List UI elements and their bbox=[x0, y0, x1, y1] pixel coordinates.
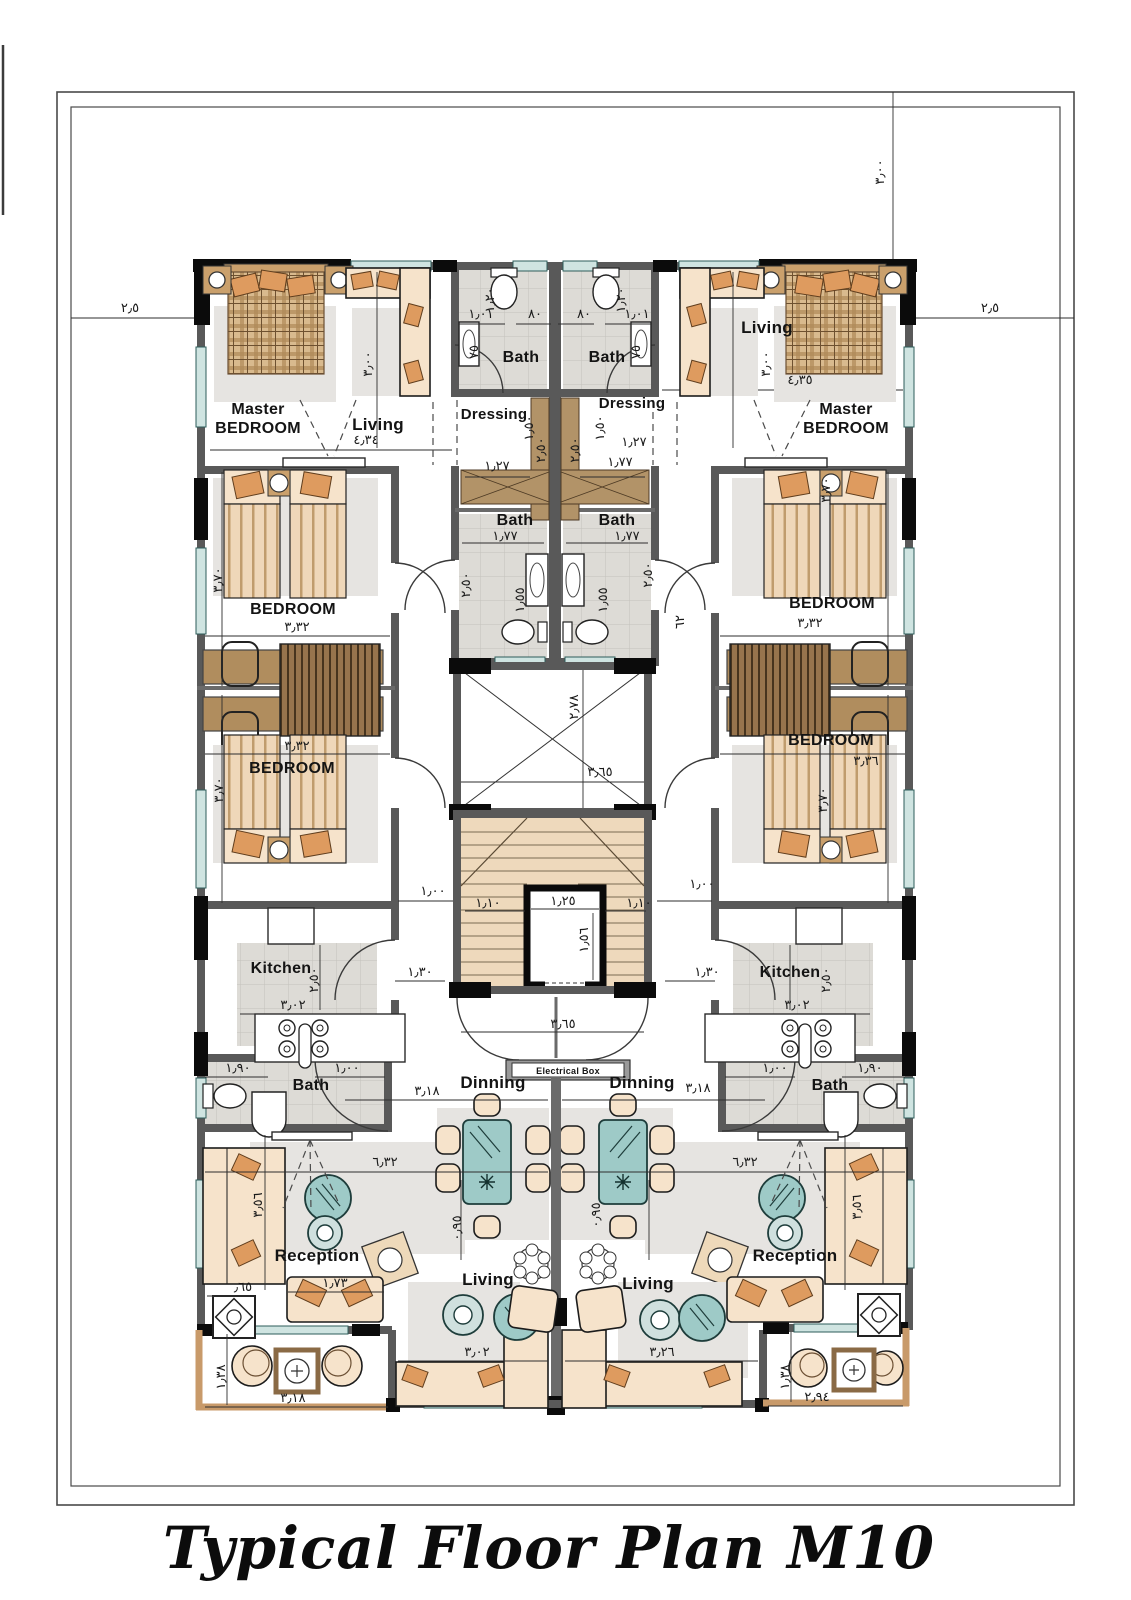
party-wall bbox=[551, 1077, 561, 1415]
dim-label: ٣٫٠٢ bbox=[464, 1345, 489, 1360]
dim-label: ٣٫٢٦ bbox=[649, 1345, 674, 1360]
dim-label: ٧٥ bbox=[467, 345, 482, 359]
dim-label: ١٫٢٠ bbox=[614, 287, 629, 312]
room-label-master-left-line2: BEDROOM bbox=[215, 420, 301, 437]
dim-label: ٣٫٥٦ bbox=[251, 1192, 266, 1217]
dim-label: ٣٫٧٠ bbox=[819, 477, 834, 502]
room-label-bedroom-right-1: BEDROOM bbox=[789, 595, 875, 612]
dim-label: ١٫٧٧ bbox=[492, 529, 517, 544]
room-label-master-left-line1: Master bbox=[231, 401, 284, 418]
dim-label: ١٫٩٠ bbox=[225, 1061, 250, 1076]
dim-label: ١٫٧٣ bbox=[322, 1276, 347, 1291]
dim-label: ٨٠ bbox=[577, 307, 591, 322]
dim-label: ٢٫٥٠ bbox=[307, 967, 322, 992]
room-label-bath-top-left: Bath bbox=[503, 349, 540, 366]
dim-label: ٢٫٥٠ bbox=[534, 437, 549, 462]
room-label-bath-mid-right: Bath bbox=[599, 512, 636, 529]
room-label-living-top-right: Living bbox=[741, 318, 793, 337]
dim-label: ٣٫٧٠ bbox=[816, 787, 831, 812]
room-label-master-right-line1: Master bbox=[819, 401, 872, 418]
dim-label: ٣٫٣٢ bbox=[284, 620, 309, 635]
room-label-dressing-right: Dressing bbox=[599, 395, 666, 412]
dim-label: ٢٫٥٠ bbox=[819, 967, 834, 992]
room-label-living-bottom-right: Living bbox=[622, 1274, 674, 1293]
plant-right bbox=[580, 1244, 616, 1284]
dim-label: ١٫٥٥ bbox=[513, 587, 528, 612]
floor-plan-page: MasterBEDROOMLivingBathBathDressingDress… bbox=[0, 0, 1131, 1600]
bedroom1-furniture bbox=[213, 470, 378, 598]
room-label-dinning-right: Dinning bbox=[609, 1073, 674, 1092]
dim-label: ٣٫٥٦ bbox=[850, 1194, 865, 1219]
dim-label: ٫٦٥ bbox=[234, 1280, 252, 1295]
room-label-kitchen-right: Kitchen bbox=[760, 964, 821, 981]
dim-label: ١٫٩٠ bbox=[857, 1061, 882, 1076]
dim-label: ١٫٣٨ bbox=[778, 1364, 793, 1389]
dim-label: ٠٫٩٥ bbox=[589, 1202, 604, 1227]
dim-label: ١٫٢٠ bbox=[483, 287, 498, 312]
dim-label: ١٫٠٠ bbox=[420, 884, 445, 899]
room-label-bath-bottom-left: Bath bbox=[293, 1077, 330, 1094]
dim-label: ١٫٢٥ bbox=[550, 894, 575, 909]
dim-label: ٣٫٠٠ bbox=[873, 159, 888, 184]
dim-label: ٠٫٩٥ bbox=[450, 1215, 465, 1240]
room-label-dinning-left: Dinning bbox=[460, 1073, 525, 1092]
dim-label: ١٫٧٧ bbox=[607, 455, 632, 470]
dim-label: ٣٫٠٢ bbox=[280, 998, 305, 1013]
room-label-bedroom-left-1: BEDROOM bbox=[250, 601, 336, 618]
dim-label: ٢٫٩٤ bbox=[804, 1390, 829, 1405]
corner-tile-right bbox=[858, 1294, 900, 1336]
room-label-electrical-box: Electrical Box bbox=[536, 1066, 600, 1076]
room-label-kitchen-left: Kitchen bbox=[251, 960, 312, 977]
dim-label: ١٫٣٨ bbox=[214, 1364, 229, 1389]
dim-label: ٣٫٧٠ bbox=[212, 777, 227, 802]
plant-left bbox=[514, 1244, 550, 1284]
dim-label: ٢٫٥ bbox=[981, 301, 999, 316]
plan-title: Typical Floor Plan M10 bbox=[163, 1514, 935, 1582]
dim-label: ٢٫٥٠ bbox=[459, 572, 474, 597]
dim-label: ١٫٠٠ bbox=[762, 1061, 787, 1076]
dim-label: ٣٫٣٦ bbox=[853, 754, 878, 769]
dim-label: ٣٫٦٥ bbox=[587, 765, 612, 780]
dim-label: ١٫٧٧ bbox=[614, 529, 639, 544]
dim-label: ١٫٣٠ bbox=[407, 965, 432, 980]
room-label-bedroom-left-2: BEDROOM bbox=[249, 760, 335, 777]
room-label-reception-right: Reception bbox=[753, 1246, 838, 1265]
dim-label: ٣٫٠٢ bbox=[784, 998, 809, 1013]
dim-label: ١٫٠٠ bbox=[689, 877, 714, 892]
dim-label: ٢٫٥٠ bbox=[568, 437, 583, 462]
dim-label: ٣٫١٨ bbox=[414, 1084, 439, 1099]
room-label-master-right-line2: BEDROOM bbox=[803, 420, 889, 437]
dim-label: ١٫٢٧ bbox=[621, 435, 646, 450]
dim-label: ٣٫٣٢ bbox=[284, 739, 309, 754]
dim-label: ١٫١٠ bbox=[626, 896, 651, 911]
dim-label: ٤٫٣٤ bbox=[353, 433, 378, 448]
room-label-reception-left: Reception bbox=[275, 1246, 360, 1265]
dim-label: ٣٫١٨ bbox=[280, 1391, 305, 1406]
dim-label: ٣٫٠٠ bbox=[361, 351, 376, 376]
dim-label: ٣٫٧٠ bbox=[211, 567, 226, 592]
dim-label: ٤٫٣٥ bbox=[787, 373, 812, 388]
dim-label: ٣٫٣٢ bbox=[797, 616, 822, 631]
dim-label: ٣٫٦٥ bbox=[550, 1017, 575, 1032]
room-label-bath-mid-left: Bath bbox=[497, 512, 534, 529]
dim-label: ٨٠ bbox=[528, 307, 542, 322]
dim-label: ٧٥ bbox=[629, 345, 644, 359]
dim-label: ١٫٣٠ bbox=[694, 965, 719, 980]
dim-label: ٣٫٠٠ bbox=[759, 351, 774, 376]
dim-label: ١٫١٠ bbox=[475, 896, 500, 911]
dim-label: ١٫٥٠ bbox=[522, 415, 537, 440]
dim-label: ٣٫١٨ bbox=[685, 1081, 710, 1096]
dim-label: ٢٫٧٨ bbox=[567, 694, 582, 719]
dim-label: ١٫٥٦ bbox=[577, 927, 592, 952]
dim-label: ٢٫٥٠ bbox=[641, 562, 656, 587]
dim-label: ٦٢ bbox=[673, 615, 688, 629]
room-label-bath-top-right: Bath bbox=[589, 349, 626, 366]
dim-label: ٢٫٥ bbox=[121, 301, 139, 316]
room-label-bath-bottom-right: Bath bbox=[812, 1077, 849, 1094]
room-label-living-bottom-left: Living bbox=[462, 1270, 514, 1289]
dim-label: ١٫٥٥ bbox=[596, 587, 611, 612]
room-label-bedroom-right-2: BEDROOM bbox=[788, 732, 874, 749]
dim-label: ١٫٠٠ bbox=[334, 1061, 359, 1076]
dim-label: ١٫٥٠ bbox=[593, 415, 608, 440]
corner-tile-left bbox=[213, 1296, 255, 1338]
dim-label: ١٫٢٧ bbox=[484, 459, 509, 474]
room-label-dressing-left: Dressing bbox=[461, 406, 528, 423]
room-label-living-top-left: Living bbox=[352, 415, 404, 434]
dim-label: ٦٫٣٢ bbox=[372, 1155, 397, 1170]
floor-plan-svg: MasterBEDROOMLivingBathBathDressingDress… bbox=[0, 0, 1131, 1600]
dim-label: ٦٫٣٢ bbox=[732, 1155, 757, 1170]
